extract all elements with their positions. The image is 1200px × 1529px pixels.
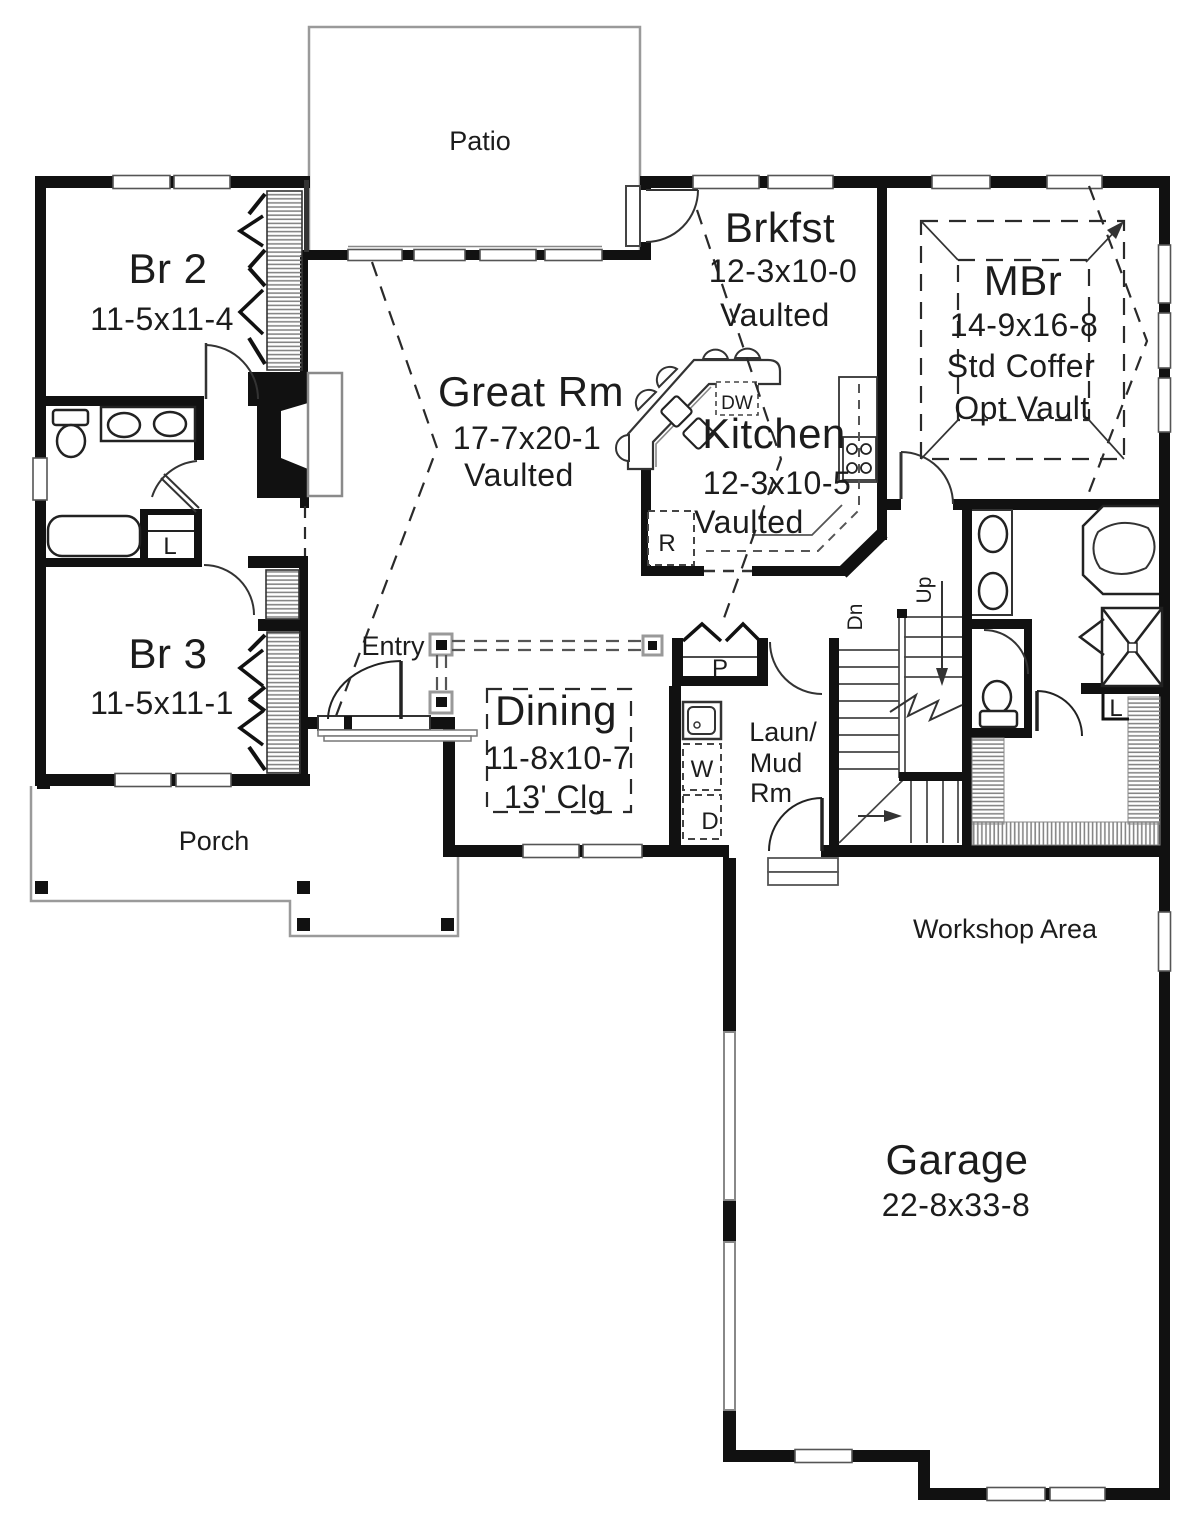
svg-text:12-3x10-0: 12-3x10-0	[709, 253, 858, 289]
svg-text:Up: Up	[913, 577, 936, 604]
svg-text:P: P	[712, 655, 728, 682]
svg-text:Mud: Mud	[750, 748, 803, 778]
svg-text:Great Rm: Great Rm	[438, 368, 624, 415]
svg-text:R: R	[658, 530, 675, 557]
svg-text:Kitchen: Kitchen	[702, 410, 846, 457]
svg-text:Dining: Dining	[495, 687, 617, 734]
svg-text:Rm: Rm	[750, 778, 792, 808]
svg-text:22-8x33-8: 22-8x33-8	[882, 1187, 1031, 1223]
svg-text:Vaulted: Vaulted	[464, 457, 574, 493]
svg-text:D: D	[701, 808, 718, 835]
svg-text:Porch: Porch	[179, 826, 250, 856]
svg-text:14-9x16-8: 14-9x16-8	[950, 307, 1099, 343]
svg-text:17-7x20-1: 17-7x20-1	[453, 420, 602, 456]
svg-text:Laun/: Laun/	[749, 717, 817, 747]
svg-text:DW: DW	[721, 393, 753, 414]
svg-text:Patio: Patio	[449, 126, 511, 156]
svg-text:Workshop Area: Workshop Area	[913, 914, 1098, 944]
svg-text:L: L	[1109, 695, 1122, 722]
svg-text:13' Clg: 13' Clg	[504, 779, 606, 815]
svg-text:11-5x11-1: 11-5x11-1	[90, 685, 234, 721]
svg-text:L: L	[163, 533, 176, 560]
svg-text:Br 3: Br 3	[128, 630, 207, 677]
svg-text:12-3x10-5: 12-3x10-5	[703, 465, 852, 501]
svg-text:Vaulted: Vaulted	[720, 297, 830, 333]
svg-text:Br 2: Br 2	[128, 245, 207, 292]
svg-text:Dn: Dn	[844, 604, 867, 631]
svg-text:Brkfst: Brkfst	[725, 204, 835, 251]
svg-text:11-8x10-7: 11-8x10-7	[485, 740, 631, 776]
svg-text:Opt Vault: Opt Vault	[954, 390, 1090, 426]
svg-text:Garage: Garage	[885, 1136, 1028, 1183]
svg-text:Vaulted: Vaulted	[694, 504, 804, 540]
svg-text:Entry: Entry	[361, 631, 425, 661]
svg-text:MBr: MBr	[984, 257, 1063, 304]
svg-text:Std Coffer: Std Coffer	[947, 348, 1095, 384]
svg-text:11-5x11-4: 11-5x11-4	[90, 301, 234, 337]
svg-text:W: W	[691, 756, 714, 783]
